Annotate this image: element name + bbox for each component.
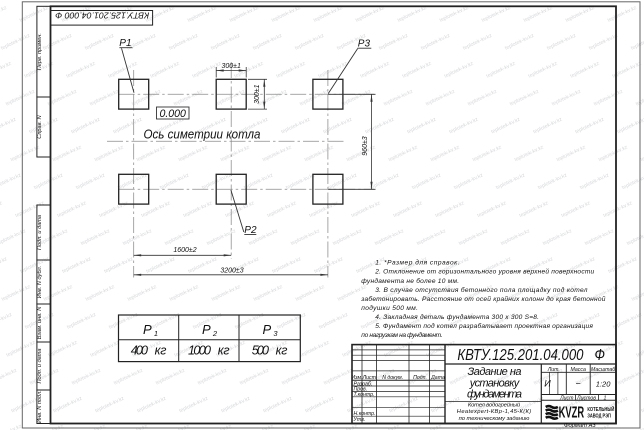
svg-text:–: – <box>575 379 581 388</box>
svg-text:кг: кг <box>155 344 167 358</box>
svg-text:teplotek-kv.kz: teplotek-kv.kz <box>300 340 331 359</box>
svg-text:teplotek-kv.kz: teplotek-kv.kz <box>239 368 270 387</box>
svg-text:teplotek-kv.kz: teplotek-kv.kz <box>276 61 307 80</box>
svg-text:teplotek-kv.kz: teplotek-kv.kz <box>318 61 349 80</box>
svg-text:teplotek-kv.kz: teplotek-kv.kz <box>294 33 325 52</box>
svg-text:teplotek-kv.kz: teplotek-kv.kz <box>285 172 316 191</box>
svg-text:teplotek-kv.kz: teplotek-kv.kz <box>103 256 134 275</box>
svg-text:teplotek-kv.kz: teplotek-kv.kz <box>253 284 284 303</box>
svg-text:0.000: 0.000 <box>159 108 186 120</box>
svg-text:teplotek-kv.kz: teplotek-kv.kz <box>173 89 204 108</box>
svg-text:1000: 1000 <box>188 344 211 358</box>
svg-text:teplotek-kv.kz: teplotek-kv.kz <box>435 200 466 219</box>
svg-text:teplotek-kv.kz: teplotek-kv.kz <box>220 144 251 163</box>
svg-text:teplotek-kv.kz: teplotek-kv.kz <box>425 89 456 108</box>
svg-text:teplotek-kv.kz: teplotek-kv.kz <box>342 340 373 359</box>
svg-text:teplotek-kv.kz: teplotek-kv.kz <box>159 172 190 191</box>
svg-text:2. Отклонение от горизонтально: 2. Отклонение от горизонтального уровня … <box>374 268 594 276</box>
svg-text:Утв.: Утв. <box>354 417 366 423</box>
svg-text:кг: кг <box>218 344 230 358</box>
svg-text:teplotek-kv.kz: teplotek-kv.kz <box>561 200 592 219</box>
svg-text:1: 1 <box>604 395 607 401</box>
svg-text:teplotek-kv.kz: teplotek-kv.kz <box>271 256 302 275</box>
svg-text:teplotek-kv.kz: teplotek-kv.kz <box>486 61 517 80</box>
svg-text:teplotek-kv.kz: teplotek-kv.kz <box>127 284 158 303</box>
svg-text:teplotek-kv.kz: teplotek-kv.kz <box>439 5 470 24</box>
svg-text:teplotek-kv.kz: teplotek-kv.kz <box>28 116 59 135</box>
svg-text:teplotek-kv.kz: teplotek-kv.kz <box>635 89 644 108</box>
svg-text:teplotek-kv.kz: teplotek-kv.kz <box>215 89 246 108</box>
svg-text:Н.контр.: Н.контр. <box>354 411 376 417</box>
svg-text:3. В случае отсутствия бетонно: 3. В случае отсутствия бетонного пола пл… <box>375 286 588 294</box>
svg-text:teplotek-kv.kz: teplotek-kv.kz <box>1 284 32 303</box>
svg-text:teplotek-kv.kz: teplotek-kv.kz <box>80 228 111 247</box>
svg-text:teplotek-kv.kz: teplotek-kv.kz <box>66 312 97 331</box>
svg-text:teplotek-kv.kz: teplotek-kv.kz <box>546 33 577 52</box>
svg-text:3200±3: 3200±3 <box>220 268 243 275</box>
svg-text:KVZR: KVZR <box>559 404 585 421</box>
svg-text:Справ. N: Справ. N <box>37 114 43 138</box>
svg-text:Взам. инв. N: Взам. инв. N <box>37 306 43 340</box>
svg-text:teplotek-kv.kz: teplotek-kv.kz <box>318 312 349 331</box>
svg-text:300±1: 300±1 <box>254 84 261 104</box>
svg-text:Дата: Дата <box>430 375 445 381</box>
svg-text:teplotek-kv.kz: teplotek-kv.kz <box>402 61 433 80</box>
svg-text:300±1: 300±1 <box>221 63 241 70</box>
svg-text:Масса: Масса <box>571 367 586 373</box>
svg-text:teplotek-kv.kz: teplotek-kv.kz <box>0 116 18 135</box>
svg-text:teplotek-kv.kz: teplotek-kv.kz <box>267 200 298 219</box>
svg-text:teplotek-kv.kz: teplotek-kv.kz <box>607 256 638 275</box>
svg-text:teplotek-kv.kz: teplotek-kv.kz <box>388 144 419 163</box>
svg-text:teplotek-kv.kz: teplotek-kv.kz <box>57 200 88 219</box>
svg-text:teplotek-kv.kz: teplotek-kv.kz <box>29 368 60 387</box>
svg-text:teplotek-kv.kz: teplotek-kv.kz <box>631 284 644 303</box>
svg-text:teplotek-kv.kz: teplotek-kv.kz <box>197 368 228 387</box>
svg-text:Лист: Лист <box>362 375 377 381</box>
svg-text:teplotek-kv.kz: teplotek-kv.kz <box>355 5 386 24</box>
svg-text:teplotek-kv.kz: teplotek-kv.kz <box>574 116 605 135</box>
svg-text:teplotek-kv.kz: teplotek-kv.kz <box>70 116 101 135</box>
svg-text:teplotek-kv.kz: teplotek-kv.kz <box>262 144 293 163</box>
svg-text:кг: кг <box>276 344 288 358</box>
svg-text:teplotek-kv.kz: teplotek-kv.kz <box>220 395 251 414</box>
svg-text:teplotek-kv.kz: teplotek-kv.kz <box>48 340 79 359</box>
svg-text:teplotek-kv.kz: teplotek-kv.kz <box>416 228 447 247</box>
svg-text:teplotek-kv.kz: teplotek-kv.kz <box>0 200 4 219</box>
svg-text:teplotek-kv.kz: teplotek-kv.kz <box>462 33 493 52</box>
svg-text:teplotek-kv.kz: teplotek-kv.kz <box>551 89 582 108</box>
svg-text:teplotek-kv.kz: teplotek-kv.kz <box>504 33 535 52</box>
svg-text:teplotek-kv.kz: teplotek-kv.kz <box>280 116 311 135</box>
svg-text:teplotek-kv.kz: teplotek-kv.kz <box>341 89 372 108</box>
svg-text:teplotek-kv.kz: teplotek-kv.kz <box>99 200 130 219</box>
svg-text:Перв. примен.: Перв. примен. <box>37 33 43 70</box>
svg-text:teplotek-kv.kz: teplotek-kv.kz <box>467 89 498 108</box>
svg-text:Котел водогрейный: Котел водогрейный <box>468 401 521 408</box>
svg-text:teplotek-kv.kz: teplotek-kv.kz <box>448 116 479 135</box>
svg-text:teplotek-kv.kz: teplotek-kv.kz <box>108 61 139 80</box>
svg-text:teplotek-kv.kz: teplotek-kv.kz <box>19 5 50 24</box>
svg-text:teplotek-kv.kz: teplotek-kv.kz <box>252 33 283 52</box>
svg-text:teplotek-kv.kz: teplotek-kv.kz <box>603 200 634 219</box>
svg-text:teplotek-kv.kz: teplotek-kv.kz <box>323 368 354 387</box>
svg-text:teplotek-kv.kz: teplotek-kv.kz <box>211 284 242 303</box>
svg-text:teplotek-kv.kz: teplotek-kv.kz <box>332 228 363 247</box>
svg-text:1. *Размер для справок.: 1. *Размер для справок. <box>375 259 460 267</box>
svg-text:Лист: Лист <box>559 395 574 401</box>
svg-text:teplotek-kv.kz: teplotek-kv.kz <box>490 116 521 135</box>
svg-text:teplotek-kv.kz: teplotek-kv.kz <box>588 33 619 52</box>
svg-text:teplotek-kv.kz: teplotek-kv.kz <box>206 228 237 247</box>
svg-text:teplotek-kv.kz: teplotek-kv.kz <box>5 89 36 108</box>
svg-text:teplotek-kv.kz: teplotek-kv.kz <box>178 395 209 414</box>
svg-text:teplotek-kv.kz: teplotek-kv.kz <box>444 61 475 80</box>
svg-text:teplotek-kv.kz: teplotek-kv.kz <box>84 33 115 52</box>
svg-text:teplotek-kv.kz: teplotek-kv.kz <box>537 172 568 191</box>
svg-text:Инв. N дубл.: Инв. N дубл. <box>37 266 43 298</box>
svg-text:ЗАВОД РЭП: ЗАВОД РЭП <box>587 414 611 420</box>
svg-text:фундамента: фундамента <box>467 389 522 401</box>
svg-text:teplotek-kv.kz: teplotek-kv.kz <box>299 89 330 108</box>
svg-text:P3: P3 <box>358 38 371 49</box>
svg-text:teplotek-kv.kz: teplotek-kv.kz <box>406 116 437 135</box>
svg-text:teplotek-kv.kz: teplotek-kv.kz <box>593 89 624 108</box>
svg-text:teplotek-kv.kz: teplotek-kv.kz <box>542 228 573 247</box>
svg-text:teplotek-kv.kz: teplotek-kv.kz <box>19 256 50 275</box>
svg-text:teplotek-kv.kz: teplotek-kv.kz <box>75 172 106 191</box>
svg-text:teplotek-kv.kz: teplotek-kv.kz <box>257 89 288 108</box>
svg-text:teplotek-kv.kz: teplotek-kv.kz <box>43 284 74 303</box>
svg-text:teplotek-kv.kz: teplotek-kv.kz <box>304 395 335 414</box>
svg-text:teplotek-kv.kz: teplotek-kv.kz <box>622 423 644 430</box>
svg-text:teplotek-kv.kz: teplotek-kv.kz <box>225 200 256 219</box>
svg-text:teplotek-kv.kz: teplotek-kv.kz <box>565 5 596 24</box>
svg-text:Ось симетрии котла: Ось симетрии котла <box>144 127 261 141</box>
svg-text:teplotek-kv.kz: teplotek-kv.kz <box>164 228 195 247</box>
svg-text:teplotek-kv.kz: teplotek-kv.kz <box>112 116 143 135</box>
svg-text:teplotek-kv.kz: teplotek-kv.kz <box>229 5 260 24</box>
svg-text:teplotek-kv.kz: teplotek-kv.kz <box>519 200 550 219</box>
svg-text:teplotek-kv.kz: teplotek-kv.kz <box>304 144 335 163</box>
svg-text:teplotek-kv.kz: teplotek-kv.kz <box>52 395 83 414</box>
svg-text:teplotek-kv.kz: teplotek-kv.kz <box>0 228 27 247</box>
svg-text:teplotek-kv.kz: teplotek-kv.kz <box>271 5 302 24</box>
svg-text:teplotek-kv.kz: teplotek-kv.kz <box>113 368 144 387</box>
svg-text:teplotek-kv.kz: teplotek-kv.kz <box>90 340 121 359</box>
svg-text:500: 500 <box>252 344 269 358</box>
svg-text:teplotek-kv.kz: teplotek-kv.kz <box>607 5 638 24</box>
svg-text:teplotek-kv.kz: teplotek-kv.kz <box>168 33 199 52</box>
svg-text:teplotek-kv.kz: teplotek-kv.kz <box>187 5 218 24</box>
svg-text:teplotek-kv.kz: teplotek-kv.kz <box>295 284 326 303</box>
svg-text:teplotek-kv.kz: teplotek-kv.kz <box>640 395 644 414</box>
svg-text:4. Закладная деталь фундамента: 4. Закладная деталь фундамента 300 х 300… <box>375 313 539 321</box>
svg-text:teplotek-kv.kz: teplotek-kv.kz <box>0 423 23 430</box>
svg-text:Формат А3: Формат А3 <box>564 423 596 429</box>
svg-text:teplotek-kv.kz: teplotek-kv.kz <box>364 116 395 135</box>
svg-text:teplotek-kv.kz: teplotek-kv.kz <box>481 5 512 24</box>
svg-text:teplotek-kv.kz: teplotek-kv.kz <box>210 33 241 52</box>
svg-text:по техническому заданию: по техническому заданию <box>459 416 530 422</box>
svg-text:teplotek-kv.kz: teplotek-kv.kz <box>169 284 200 303</box>
svg-text:teplotek-kv.kz: teplotek-kv.kz <box>131 89 162 108</box>
svg-text:teplotek-kv.kz: teplotek-kv.kz <box>85 284 116 303</box>
svg-text:teplotek-kv.kz: teplotek-kv.kz <box>630 33 644 52</box>
svg-text:teplotek-kv.kz: teplotek-kv.kz <box>281 368 312 387</box>
svg-text:teplotek-kv.kz: teplotek-kv.kz <box>0 256 9 275</box>
svg-text:забетонировать. Расстояние от: забетонировать. Расстояние от осей крайн… <box>360 295 605 303</box>
svg-text:teplotek-kv.kz: teplotek-kv.kz <box>94 144 125 163</box>
svg-text:teplotek-kv.kz: teplotek-kv.kz <box>426 340 457 359</box>
svg-text:teplotek-kv.kz: teplotek-kv.kz <box>322 116 353 135</box>
svg-text:teplotek-kv.kz: teplotek-kv.kz <box>397 5 428 24</box>
svg-text:P2: P2 <box>202 322 218 338</box>
svg-text:1600±2: 1600±2 <box>173 247 196 254</box>
svg-text:5. Фундамент под котел разраба: 5. Фундамент под котел разрабатывает про… <box>375 322 593 330</box>
svg-text:по нагрузкам на фундамент.: по нагрузкам на фундамент. <box>361 331 442 339</box>
svg-text:teplotek-kv.kz: teplotek-kv.kz <box>420 33 451 52</box>
svg-text:И: И <box>544 378 551 388</box>
svg-text:teplotek-kv.kz: teplotek-kv.kz <box>383 89 414 108</box>
svg-text:teplotek-kv.kz: teplotek-kv.kz <box>477 200 508 219</box>
svg-text:teplotek-kv.kz: teplotek-kv.kz <box>122 228 153 247</box>
svg-text:КОТЕЛЬНЫЙ: КОТЕЛЬНЫЙ <box>587 405 614 413</box>
svg-text:teplotek-kv.kz: teplotek-kv.kz <box>0 172 22 191</box>
svg-text:Подп. и дата: Подп. и дата <box>37 215 43 250</box>
svg-text:teplotek-kv.kz: teplotek-kv.kz <box>532 116 563 135</box>
svg-text:teplotek-kv.kz: teplotek-kv.kz <box>183 200 214 219</box>
svg-text:teplotek-kv.kz: teplotek-kv.kz <box>453 172 484 191</box>
svg-text:teplotek-kv.kz: teplotek-kv.kz <box>509 89 540 108</box>
svg-text:teplotek-kv.kz: teplotek-kv.kz <box>0 312 13 331</box>
svg-text:teplotek-kv.kz: teplotek-kv.kz <box>430 144 461 163</box>
svg-text:teplotek-kv.kz: teplotek-kv.kz <box>141 200 172 219</box>
svg-text:1:20: 1:20 <box>596 380 611 389</box>
svg-text:teplotek-kv.kz: teplotek-kv.kz <box>61 256 92 275</box>
svg-text:teplotek-kv.kz: teplotek-kv.kz <box>0 5 8 24</box>
svg-text:teplotek-kv.kz: teplotek-kv.kz <box>393 200 424 219</box>
svg-text:Задание на: Задание на <box>468 366 522 378</box>
svg-text:Инв. N подл.: Инв. N подл. <box>37 390 43 423</box>
svg-text:teplotek-kv.kz: teplotek-kv.kz <box>150 61 181 80</box>
svg-text:teplotek-kv.kz: teplotek-kv.kz <box>155 368 186 387</box>
svg-text:teplotek-kv.kz: teplotek-kv.kz <box>360 61 391 80</box>
svg-text:teplotek-kv.kz: teplotek-kv.kz <box>384 340 415 359</box>
svg-text:400: 400 <box>131 344 148 358</box>
svg-text:teplotek-kv.kz: teplotek-kv.kz <box>0 368 18 387</box>
svg-text:teplotek-kv.kz: teplotek-kv.kz <box>388 395 419 414</box>
svg-text:Листов: Листов <box>576 395 596 401</box>
svg-text:teplotek-kv.kz: teplotek-kv.kz <box>33 172 64 191</box>
svg-text:Лит.: Лит. <box>547 367 560 373</box>
svg-text:teplotek-kv.kz: teplotek-kv.kz <box>290 228 321 247</box>
svg-text:teplotek-kv.kz: teplotek-kv.kz <box>378 33 409 52</box>
svg-text:teplotek-kv.kz: teplotek-kv.kz <box>570 61 601 80</box>
svg-text:teplotek-kv.kz: teplotek-kv.kz <box>523 5 554 24</box>
svg-text:Изм.: Изм. <box>351 375 362 381</box>
svg-text:teplotek-kv.kz: teplotek-kv.kz <box>621 172 644 191</box>
svg-text:teplotek-kv.kz: teplotek-kv.kz <box>136 395 167 414</box>
svg-text:подушки 500 мм.: подушки 500 мм. <box>361 304 418 312</box>
svg-text:teplotek-kv.kz: teplotek-kv.kz <box>495 172 526 191</box>
svg-text:teplotek-kv.kz: teplotek-kv.kz <box>42 33 73 52</box>
svg-text:КВТУ.125.201.04.000 Ф: КВТУ.125.201.04.000 Ф <box>457 347 605 364</box>
svg-text:N докум.: N докум. <box>382 375 403 381</box>
svg-text:Т.контр.: Т.контр. <box>354 392 375 398</box>
svg-text:teplotek-kv.kz: teplotek-kv.kz <box>117 172 148 191</box>
svg-text:teplotek-kv.kz: teplotek-kv.kz <box>192 61 223 80</box>
svg-text:teplotek-kv.kz: teplotek-kv.kz <box>598 144 629 163</box>
svg-text:teplotek-kv.kz: teplotek-kv.kz <box>178 144 209 163</box>
svg-text:teplotek-kv.kz: teplotek-kv.kz <box>10 144 41 163</box>
svg-text:КВТУ.125.201.04.000 Ф: КВТУ.125.201.04.000 Ф <box>55 11 149 21</box>
svg-text:teplotek-kv.kz: teplotek-kv.kz <box>136 144 167 163</box>
svg-text:teplotek-kv.kz: teplotek-kv.kz <box>47 89 78 108</box>
svg-text:teplotek-kv.kz: teplotek-kv.kz <box>94 395 125 414</box>
svg-text:установку: установку <box>469 377 521 389</box>
svg-text:teplotek-kv.kz: teplotek-kv.kz <box>71 368 102 387</box>
svg-text:teplotek-kv.kz: teplotek-kv.kz <box>528 61 559 80</box>
svg-text:teplotek-kv.kz: teplotek-kv.kz <box>52 144 83 163</box>
svg-text:teplotek-kv.kz: teplotek-kv.kz <box>514 144 545 163</box>
svg-text:teplotek-kv.kz: teplotek-kv.kz <box>556 144 587 163</box>
svg-text:teplotek-kv.kz: teplotek-kv.kz <box>6 340 37 359</box>
svg-text:teplotek-kv.kz: teplotek-kv.kz <box>458 228 489 247</box>
svg-text:teplotek-kv.kz: teplotek-kv.kz <box>351 200 382 219</box>
svg-text:teplotek-kv.kz: teplotek-kv.kz <box>500 228 531 247</box>
svg-text:teplotek-kv.kz: teplotek-kv.kz <box>374 228 405 247</box>
svg-text:Масштаб: Масштаб <box>591 367 616 373</box>
svg-text:teplotek-kv.kz: teplotek-kv.kz <box>187 256 218 275</box>
svg-text:teplotek-kv.kz: teplotek-kv.kz <box>369 172 400 191</box>
svg-text:фундамента не более 10 мм.: фундамента не более 10 мм. <box>361 277 459 285</box>
svg-text:teplotek-kv.kz: teplotek-kv.kz <box>411 172 442 191</box>
svg-text:Подп.: Подп. <box>413 375 427 381</box>
svg-text:teplotek-kv.kz: teplotek-kv.kz <box>89 89 120 108</box>
svg-text:teplotek-kv.kz: teplotek-kv.kz <box>243 172 274 191</box>
svg-text:teplotek-kv.kz: teplotek-kv.kz <box>0 33 31 52</box>
svg-text:teplotek-kv.kz: teplotek-kv.kz <box>313 256 344 275</box>
svg-text:teplotek-kv.kz: teplotek-kv.kz <box>626 228 644 247</box>
svg-text:teplotek-kv.kz: teplotek-kv.kz <box>584 228 615 247</box>
svg-text:Подп. и дата: Подп. и дата <box>37 348 43 383</box>
svg-text:teplotek-kv.kz: teplotek-kv.kz <box>66 61 97 80</box>
svg-text:teplotek-kv.kz: teplotek-kv.kz <box>145 256 176 275</box>
svg-text:teplotek-kv.kz: teplotek-kv.kz <box>0 61 13 80</box>
svg-text:960±3: 960±3 <box>362 136 369 156</box>
svg-text:teplotek-kv.kz: teplotek-kv.kz <box>313 5 344 24</box>
svg-text:teplotek-kv.kz: teplotek-kv.kz <box>472 144 503 163</box>
svg-text:teplotek-kv.kz: teplotek-kv.kz <box>579 172 610 191</box>
svg-text:teplotek-kv.kz: teplotek-kv.kz <box>262 395 293 414</box>
svg-text:Heatexpert-КВр-1,45-К(К): Heatexpert-КВр-1,45-К(К) <box>457 409 531 415</box>
